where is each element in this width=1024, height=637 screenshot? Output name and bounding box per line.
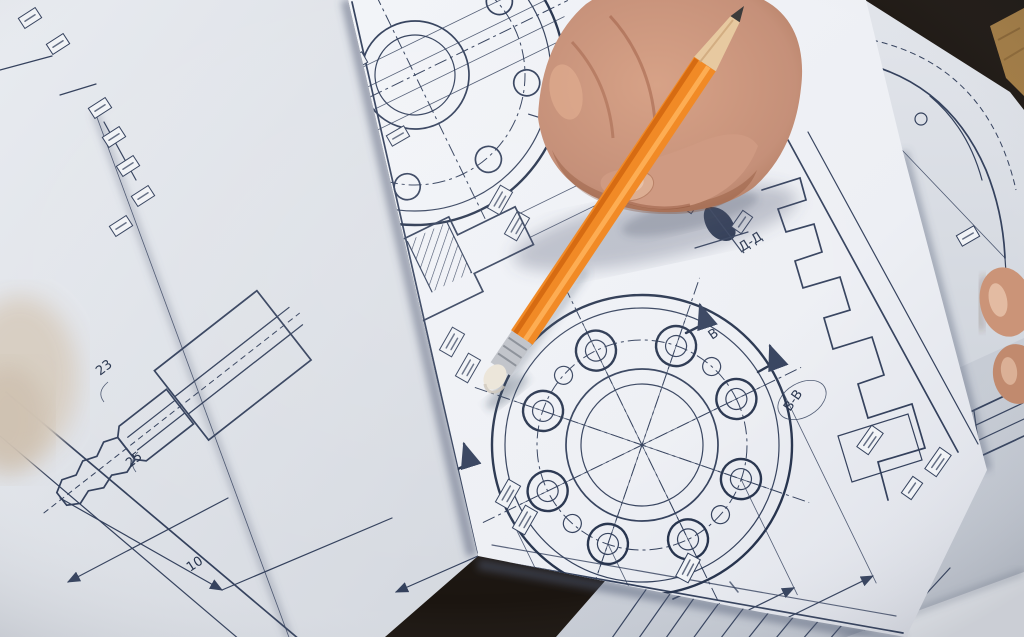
photo-canvas: 23 25 10 bbox=[0, 0, 1024, 637]
light-vignette bbox=[0, 0, 1024, 637]
blueprint-photo: 23 25 10 bbox=[0, 0, 1024, 637]
